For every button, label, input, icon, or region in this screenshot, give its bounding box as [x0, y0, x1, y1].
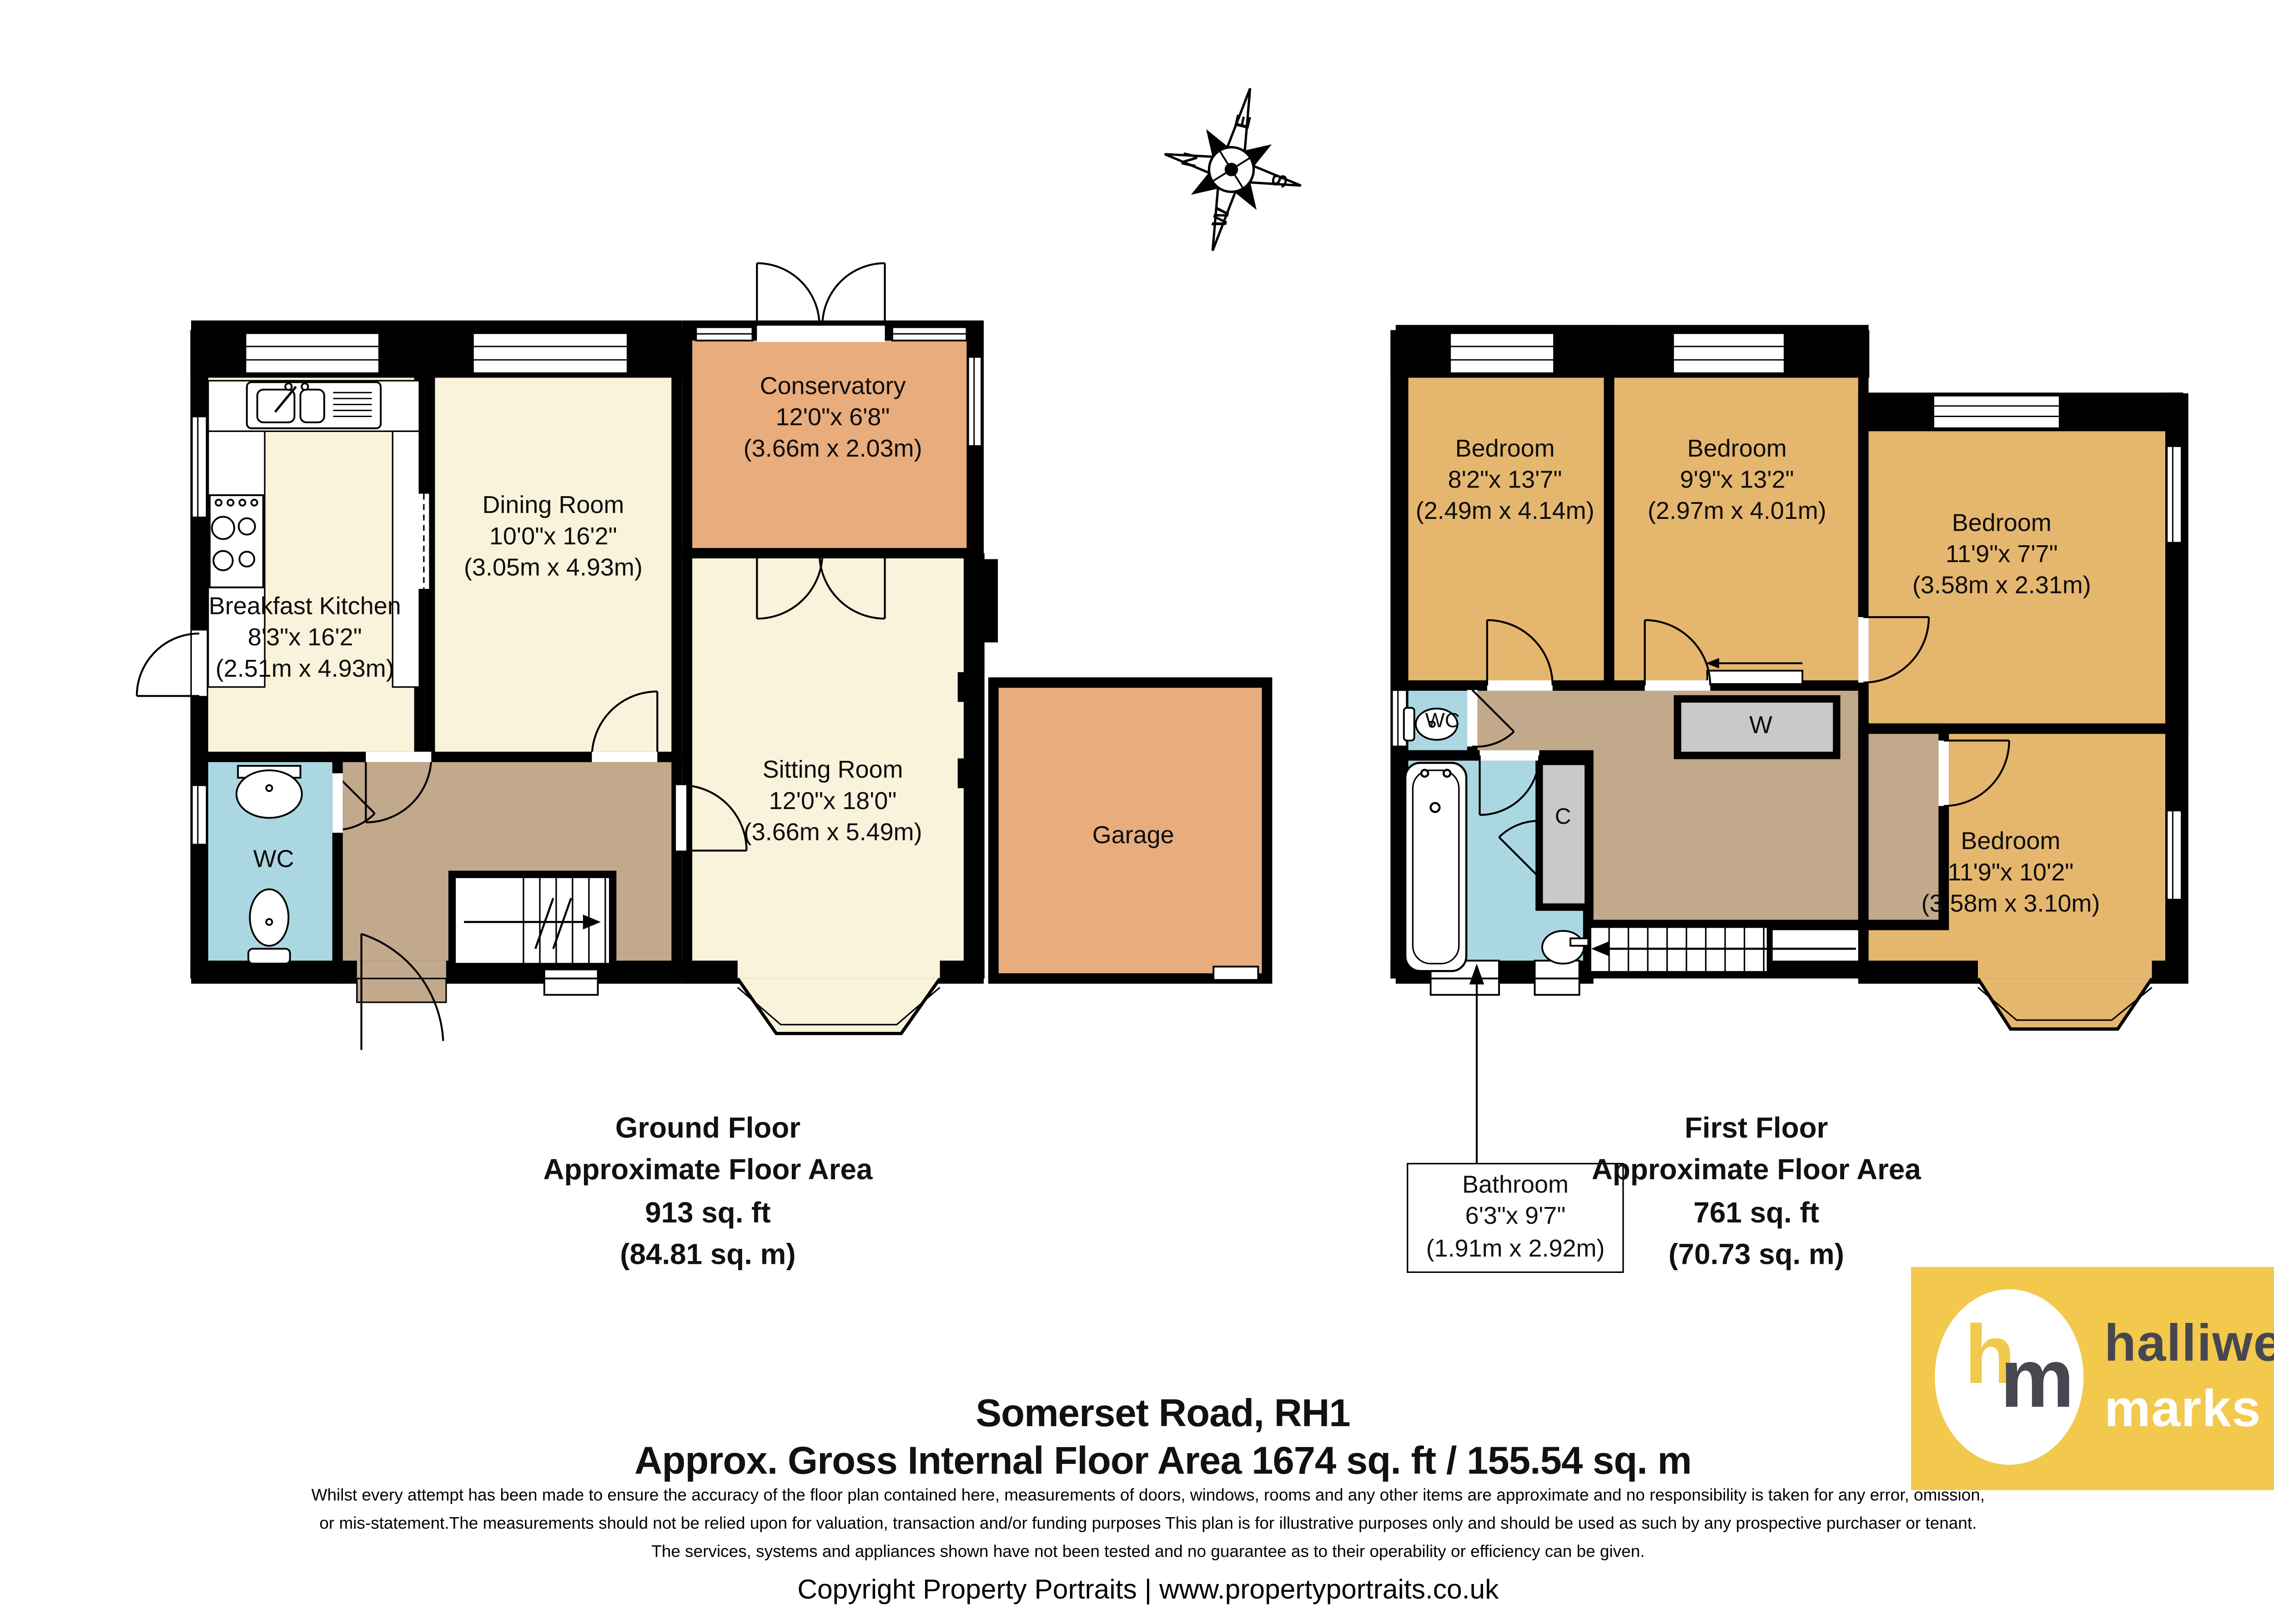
window	[2167, 810, 2182, 900]
window	[1933, 396, 2060, 428]
room-name: Bathroom	[1426, 1170, 1605, 1202]
compass-north-label: N	[1177, 150, 1202, 170]
window	[1431, 979, 1499, 995]
window	[968, 357, 981, 446]
copyright-line: Copyright Property Portraits | www.prope…	[797, 1574, 1499, 1606]
room-dims-metric: (3.05m x 4.93m)	[464, 553, 643, 585]
floor-area-label: Approximate Floor Area	[543, 1150, 872, 1192]
room-name: Sitting Room	[744, 755, 922, 787]
room-name: Bedroom	[1648, 434, 1826, 466]
room-dims: 8'3"x 16'2"	[209, 623, 401, 654]
room-dims: 8'2"x 13'7"	[1416, 466, 1595, 497]
room-dims: 11'9"x 10'2"	[1922, 858, 2100, 890]
window	[473, 333, 628, 373]
garage-label: Garage	[1092, 821, 1174, 852]
conservatory-door-gap	[757, 326, 885, 342]
compass-west-label: W	[1207, 205, 1234, 230]
floor-area-sqft: 761 sq. ft	[1592, 1192, 1921, 1234]
floor-area-sqm: (84.81 sq. m)	[543, 1234, 872, 1276]
window	[1213, 966, 1258, 980]
room-name: WC	[253, 845, 294, 876]
window	[1450, 333, 1554, 373]
cupboard-label: C	[1555, 803, 1571, 832]
room-dims: 9'9"x 13'2"	[1648, 466, 1826, 497]
floor-area-sqm: (70.73 sq. m)	[1592, 1234, 1921, 1276]
bedroom4-label: Bedroom 11'9"x 10'2" (3.58m x 3.10m)	[1922, 827, 2100, 921]
disclaimer-line-1: Whilst every attempt has been made to en…	[312, 1487, 1985, 1505]
cupboard	[1539, 761, 1588, 907]
ground-floor-summary: Ground Floor Approximate Floor Area 913 …	[543, 1108, 872, 1276]
wc-ground-label: WC	[253, 845, 294, 876]
dining-room-label: Dining Room 10'0"x 16'2" (3.05m x 4.93m)	[464, 491, 643, 585]
room-dims-metric: (2.51m x 4.93m)	[209, 654, 401, 686]
window	[1673, 333, 1785, 373]
window	[2167, 446, 2182, 543]
stove-icon	[210, 495, 263, 588]
floor-area-label: Approximate Floor Area	[1592, 1150, 1921, 1192]
window	[192, 785, 207, 845]
room-dims-metric: (3.66m x 5.49m)	[744, 818, 922, 850]
wardrobe-label: W	[1749, 711, 1772, 742]
door-conservatory-exterior-right	[822, 263, 885, 326]
floor-title: Ground Floor	[543, 1108, 872, 1150]
room-dims-metric: (3.58m x 2.31m)	[1912, 571, 2091, 603]
wc-first-label: WC	[1425, 708, 1460, 734]
room-dims-metric: (2.49m x 4.14m)	[1416, 497, 1595, 528]
floor-area-sqft: 913 sq. ft	[543, 1192, 872, 1234]
sink-icon	[247, 382, 381, 428]
room-dims-metric: (3.58m x 3.10m)	[1922, 890, 2100, 921]
disclaimer-line-3: The services, systems and appliances sho…	[651, 1544, 1645, 1561]
address-title: Somerset Road, RH1	[976, 1390, 1350, 1436]
conservatory-label: Conservatory 12'0"x 6'8" (3.66m x 2.03m)	[744, 372, 922, 466]
room-dims-metric: (1.91m x 2.92m)	[1426, 1234, 1605, 1266]
disclaimer-line-2: or mis-statement.The measurements should…	[319, 1515, 1977, 1533]
back-door-gap	[192, 630, 207, 696]
logo-monogram-m: m	[2000, 1329, 2074, 1426]
bathtub-icon	[1405, 763, 1466, 971]
window	[192, 417, 207, 518]
window	[1535, 979, 1580, 995]
kitchen-label: Breakfast Kitchen 8'3"x 16'2" (2.51m x 4…	[209, 592, 401, 686]
wc-sink-icon	[236, 766, 302, 818]
room-abbr: W	[1749, 711, 1772, 742]
compass-rose-icon: N E S W	[1146, 73, 1320, 267]
room-dims-metric: (2.97m x 4.01m)	[1648, 497, 1826, 528]
room-name: WC	[1425, 708, 1460, 734]
bay-window-bedroom4	[1978, 959, 2152, 1029]
room-name: Breakfast Kitchen	[209, 592, 401, 623]
room-dims: 10'0"x 16'2"	[464, 522, 643, 553]
room-name: Bedroom	[1922, 827, 2100, 858]
room-dims: 12'0"x 18'0"	[744, 787, 922, 818]
floorplan-page: N E S W Breakfast Kitchen 8'3"x 16'2" (2…	[0, 0, 2274, 1624]
room-name: Bedroom	[1912, 508, 2091, 540]
logo-name-marks: marks	[2104, 1380, 2261, 1439]
room-dims: 11'9"x 7'7"	[1912, 540, 2091, 571]
room-dims: 6'3"x 9'7"	[1426, 1202, 1605, 1234]
logo-name-halliwell: halliwell	[2104, 1315, 2274, 1374]
floor-title: First Floor	[1592, 1108, 1921, 1150]
room-name: Conservatory	[744, 372, 922, 403]
compass-south-label: S	[1267, 171, 1293, 190]
room-dims-metric: (3.66m x 2.03m)	[744, 435, 922, 466]
window	[246, 333, 379, 373]
bedroom2-label: Bedroom 9'9"x 13'2" (2.97m x 4.01m)	[1648, 434, 1826, 528]
room-name: Dining Room	[464, 491, 643, 522]
room-abbr: C	[1555, 803, 1571, 832]
halliwell-marks-logo: h m halliwell marks	[1911, 1267, 2274, 1490]
window	[544, 979, 598, 995]
front-door-gap	[357, 960, 446, 978]
bay-window-sitting	[738, 959, 940, 1033]
toilet-icon	[248, 889, 290, 963]
room-name: Garage	[1092, 821, 1174, 852]
gross-area-title: Approx. Gross Internal Floor Area 1674 s…	[634, 1438, 1691, 1484]
bedroom3-label: Bedroom 11'9"x 7'7" (3.58m x 2.31m)	[1912, 508, 2091, 603]
door-conservatory-exterior-left	[757, 263, 819, 326]
room-dims: 12'0"x 6'8"	[744, 403, 922, 435]
bedroom1-label: Bedroom 8'2"x 13'7" (2.49m x 4.14m)	[1416, 434, 1595, 528]
stairs-ground	[452, 875, 613, 967]
room-name: Bedroom	[1416, 434, 1595, 466]
first-floor-summary: First Floor Approximate Floor Area 761 s…	[1592, 1108, 1921, 1276]
sitting-room-label: Sitting Room 12'0"x 18'0" (3.66m x 5.49m…	[744, 755, 922, 850]
door-back	[137, 634, 199, 696]
